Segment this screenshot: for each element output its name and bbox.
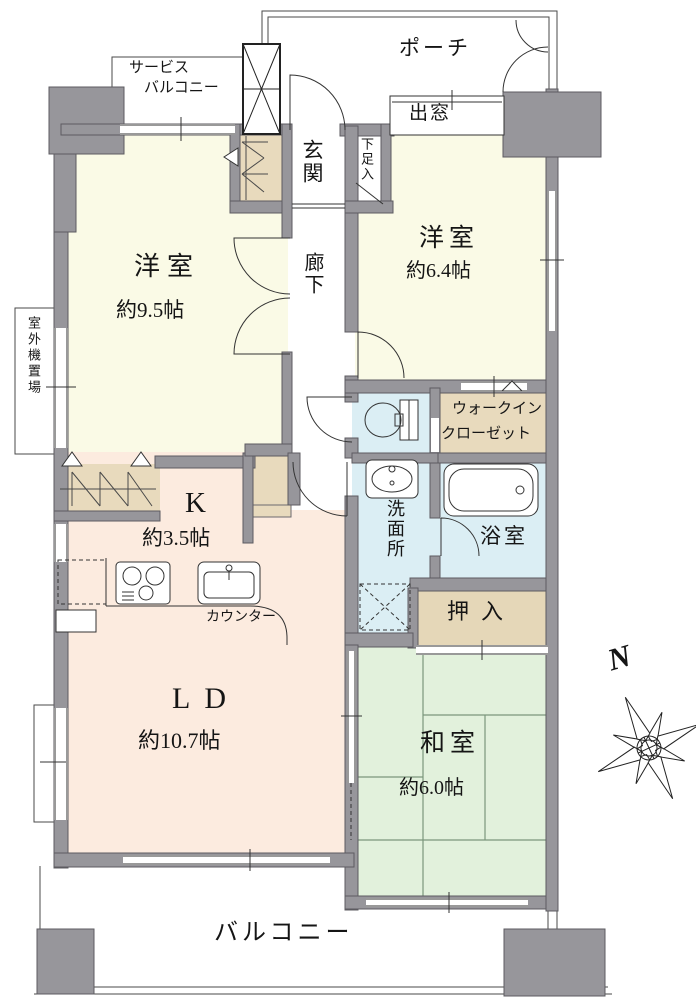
counter-label: カウンター — [206, 611, 276, 625]
washroom-label: 洗面所 — [386, 499, 404, 559]
floor-plan-drawing — [0, 0, 696, 1000]
kitchen-size: 約3.5帖 — [142, 528, 210, 549]
floor-plan: ポーチ サービス バルコニー 出窓 下足入 玄関 廊下 洋室 約9.5帖 洋室 … — [0, 0, 696, 1000]
bay-window-label: 出窓 — [409, 104, 451, 123]
japanese-room-label: 和室 — [420, 731, 480, 756]
washbasin-icon — [366, 460, 418, 498]
entrance-label: 玄関 — [301, 139, 322, 185]
pipe-shaft — [243, 44, 280, 134]
japanese-room-size: 約6.0帖 — [399, 778, 464, 798]
service-balcony-label-1: サービス — [129, 61, 189, 76]
kitchen-sink-icon — [198, 562, 260, 604]
corridor-label: 廊下 — [302, 252, 322, 296]
service-balcony-label-2: バルコニー — [144, 81, 219, 96]
bathtub-icon — [444, 464, 538, 516]
western-room-6-4-label: 洋室 — [419, 226, 479, 251]
living-dining-label: LD — [172, 684, 240, 714]
kitchen-label: K — [185, 489, 206, 518]
walk-in-closet-label-1: ウォークイン — [452, 402, 542, 417]
compass-rose — [575, 674, 696, 823]
stove-icon — [116, 562, 170, 604]
living-dining-size: 約10.7帖 — [138, 730, 221, 752]
western-room-9-5-label: 洋室 — [134, 254, 200, 280]
outdoor-unit-label: 室外機置場 — [27, 316, 40, 396]
shoe-cabinet-label: 下足入 — [360, 137, 373, 182]
western-room-6-4-size: 約6.4帖 — [406, 261, 471, 281]
bathroom-label: 浴室 — [480, 526, 528, 547]
oshiire-label: 押入 — [447, 601, 515, 623]
balcony-label: バルコニー — [214, 921, 354, 945]
walk-in-closet-label-2: クローゼット — [441, 427, 531, 442]
western-room-9-5-size: 約9.5帖 — [116, 300, 184, 321]
porch-label: ポーチ — [399, 38, 471, 59]
